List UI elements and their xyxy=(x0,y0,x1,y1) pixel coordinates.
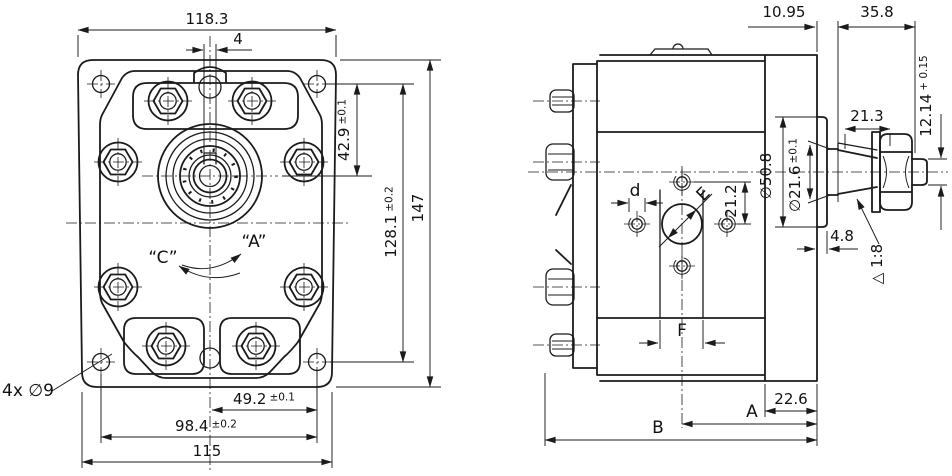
dim-keyway-width: 4 xyxy=(233,30,243,48)
port-thread-hole xyxy=(624,211,650,237)
side-body-outline xyxy=(597,55,817,381)
dim-face-to-taper: 10.95 xyxy=(763,3,806,21)
mount-hole xyxy=(87,70,115,98)
dim-bolt-vpitch: 128.1±0.2 xyxy=(382,186,400,257)
label-taper-ratio: △ 1:8 xyxy=(868,244,886,284)
dim-spigot-depth: 4.8 xyxy=(830,227,854,245)
dim-flange-width-bottom: 115 xyxy=(193,442,222,460)
label-rotation-cw: “A” xyxy=(242,232,267,252)
dim-axis-height: 42.9±0.1 xyxy=(335,99,353,161)
hex-bolt xyxy=(144,77,192,125)
dim-spigot-dia: ∅50.8 xyxy=(757,153,775,199)
rotation-arrow-cw xyxy=(182,254,241,269)
hex-bolt xyxy=(232,322,280,370)
ref-port-thread: d xyxy=(630,181,641,201)
dim-port-hole-offset: 21.2 xyxy=(722,184,740,217)
ref-length-b: B xyxy=(652,418,664,438)
front-view xyxy=(66,36,350,470)
ref-port-pitch: F xyxy=(677,321,687,341)
label-mount-holes: 4x ∅9 xyxy=(2,381,54,401)
nameplate-bump xyxy=(650,44,712,55)
dim-bolt-hpitch: 98.4±0.2 xyxy=(175,417,237,435)
taper-leader xyxy=(857,199,879,244)
dim-shaft-dia: ∅21.6±0.1 xyxy=(786,138,804,212)
hex-bolt xyxy=(94,263,142,311)
side-view xyxy=(528,44,948,428)
dim-flange-width-top: 118.3 xyxy=(186,10,229,28)
hex-bolt xyxy=(280,138,328,186)
label-rotation-ccw: “C” xyxy=(148,248,177,268)
pump-technical-drawing: 118.3 4 42.9±0.1 128.1±0.2 147 4x ∅9 49.… xyxy=(0,0,952,476)
hex-bolt xyxy=(94,138,142,186)
dim-thread-size: 12.14+ 0.15 xyxy=(917,55,935,136)
dim-key-length: 21.3 xyxy=(850,107,883,125)
mount-hole xyxy=(87,348,115,376)
hex-bolt xyxy=(142,322,190,370)
rear-cover-outline xyxy=(556,64,597,368)
rear-bolt-heads xyxy=(533,90,600,356)
dim-flange-thickness: 22.6 xyxy=(774,390,807,408)
hex-bolt xyxy=(280,263,328,311)
side-view-dimensions xyxy=(545,21,947,446)
ref-length-a: A xyxy=(746,402,758,422)
dim-flange-height: 147 xyxy=(409,194,427,223)
drawing-svg: 118.3 4 42.9±0.1 128.1±0.2 147 4x ∅9 49.… xyxy=(0,0,952,476)
hex-bolt xyxy=(228,77,276,125)
dim-shaft-length: 35.8 xyxy=(860,3,893,21)
front-top-port-plate xyxy=(133,67,298,129)
dim-bolt-half-pitch: 49.2±0.1 xyxy=(233,390,295,408)
